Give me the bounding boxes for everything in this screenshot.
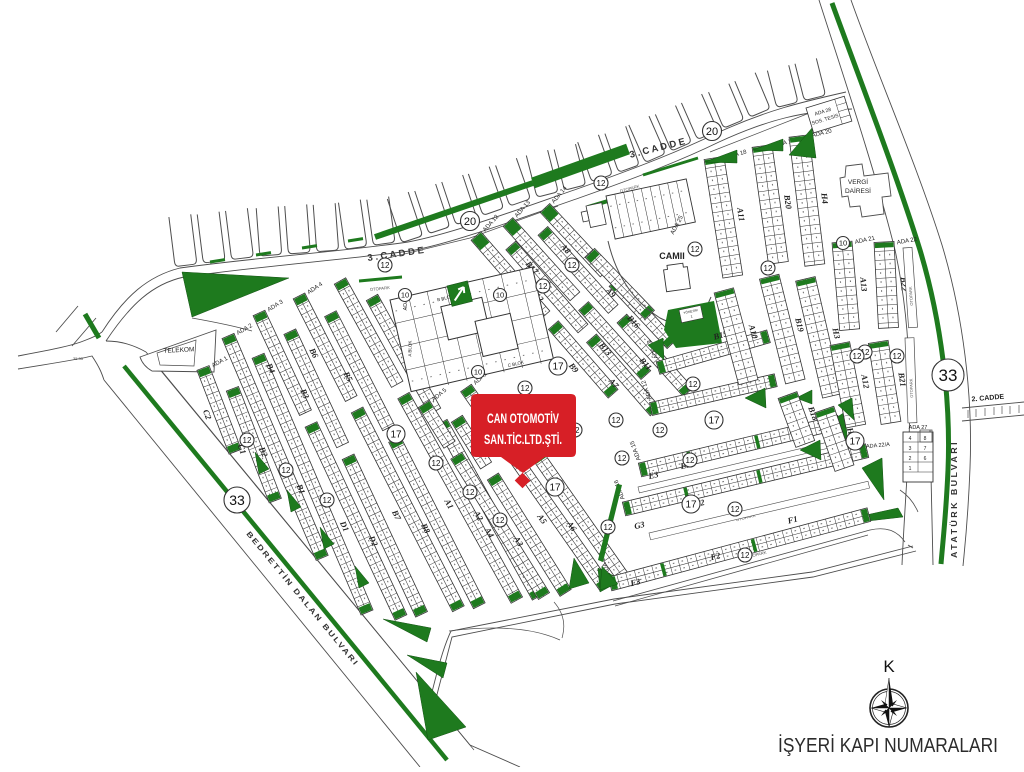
svg-text:12: 12 <box>893 352 902 361</box>
svg-text:8: 8 <box>924 436 927 442</box>
svg-text:3: 3 <box>909 446 912 452</box>
svg-text:1: 1 <box>909 466 912 472</box>
svg-text:İŞYERİ KAPI NUMARALARI: İŞYERİ KAPI NUMARALARI <box>778 734 998 757</box>
svg-text:17: 17 <box>708 416 720 427</box>
svg-text:33: 33 <box>939 366 958 385</box>
svg-text:VERGİ: VERGİ <box>848 177 868 186</box>
svg-text:2: 2 <box>909 456 912 462</box>
svg-text:10: 10 <box>839 239 847 248</box>
svg-text:CAMII: CAMII <box>659 251 685 261</box>
svg-text:12: 12 <box>466 488 475 497</box>
svg-text:12: 12 <box>597 179 606 188</box>
svg-text:12: 12 <box>496 516 505 525</box>
svg-text:20: 20 <box>706 126 718 138</box>
svg-text:12: 12 <box>539 282 548 291</box>
svg-text:OTOPARK: OTOPARK <box>908 378 914 398</box>
svg-text:10: 10 <box>474 368 482 377</box>
svg-text:12: 12 <box>689 380 698 389</box>
svg-text:12: 12 <box>432 459 441 468</box>
svg-text:12: 12 <box>604 523 613 532</box>
svg-text:12: 12 <box>853 352 862 361</box>
svg-text:A BLOK: A BLOK <box>407 341 412 357</box>
svg-text:12: 12 <box>764 264 773 273</box>
svg-text:K: K <box>883 657 895 676</box>
svg-text:12: 12 <box>612 416 621 425</box>
svg-text:20: 20 <box>464 216 476 228</box>
svg-text:12: 12 <box>381 261 390 270</box>
svg-text:33: 33 <box>229 492 245 508</box>
svg-text:CAN OTOMOTİV: CAN OTOMOTİV <box>487 411 559 426</box>
svg-text:17: 17 <box>685 500 697 511</box>
svg-text:17: 17 <box>549 483 561 494</box>
svg-text:17: 17 <box>552 362 564 373</box>
svg-text:6: 6 <box>924 456 927 462</box>
svg-text:12: 12 <box>691 245 700 254</box>
svg-text:12: 12 <box>323 496 332 505</box>
svg-text:A13: A13 <box>858 276 869 293</box>
svg-text:ATATÜRK BULVARI: ATATÜRK BULVARI <box>950 440 959 558</box>
svg-text:10: 10 <box>496 291 504 300</box>
svg-text:17: 17 <box>849 437 861 448</box>
svg-text:12: 12 <box>741 551 750 560</box>
svg-text:12: 12 <box>568 261 577 270</box>
svg-text:SAN.TİC.LTD.ŞTİ.: SAN.TİC.LTD.ŞTİ. <box>484 432 562 447</box>
svg-text:12: 12 <box>618 454 627 463</box>
svg-text:12: 12 <box>686 456 695 465</box>
svg-text:10: 10 <box>401 291 409 300</box>
svg-text:17: 17 <box>390 430 402 441</box>
svg-text:12: 12 <box>731 505 740 514</box>
svg-text:12: 12 <box>243 436 252 445</box>
svg-text:12: 12 <box>521 384 530 393</box>
svg-text:12: 12 <box>282 466 291 475</box>
svg-text:35 35: 35 35 <box>73 356 84 361</box>
svg-text:DAİRESİ: DAİRESİ <box>845 186 871 195</box>
svg-text:H4: H4 <box>819 191 830 204</box>
svg-text:7: 7 <box>924 446 927 452</box>
svg-text:4: 4 <box>909 436 912 442</box>
svg-text:12: 12 <box>656 426 665 435</box>
